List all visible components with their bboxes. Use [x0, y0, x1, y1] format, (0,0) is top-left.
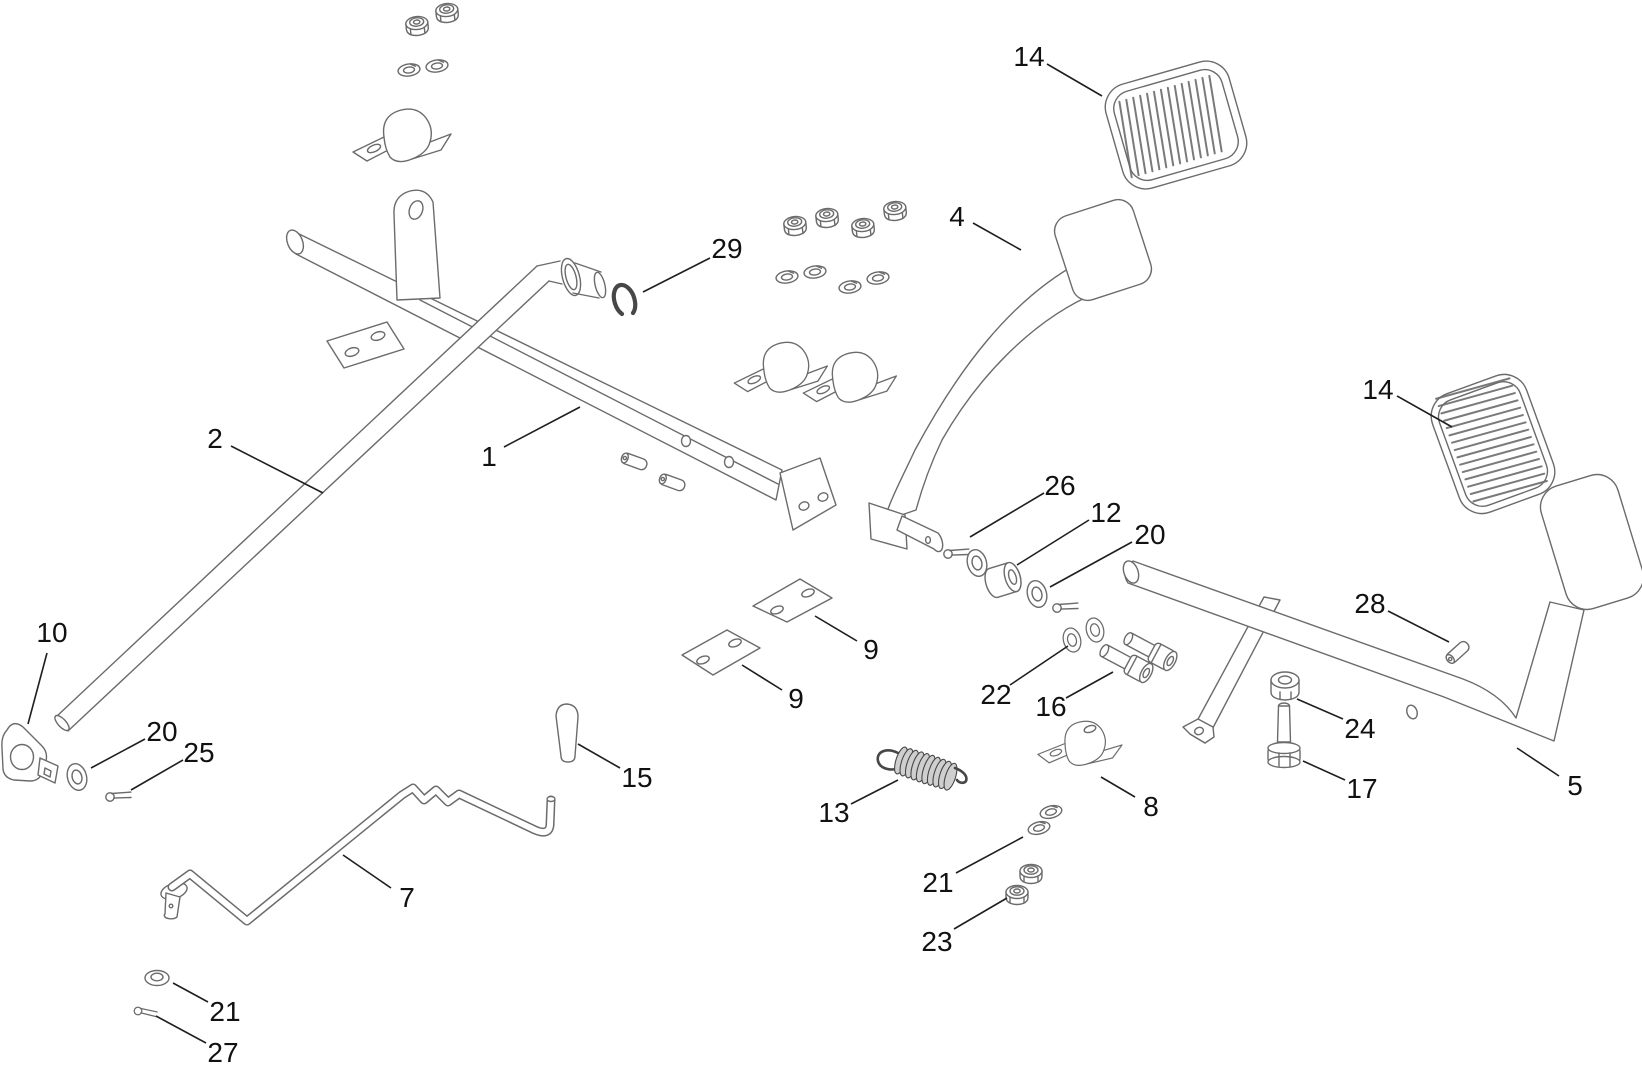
part-15-clevis-pin [556, 704, 578, 762]
callout-leader-13 [851, 780, 898, 804]
part-29-retaining-ring [614, 285, 635, 314]
callout-leader-22 [1010, 646, 1068, 685]
shim-plate-on-shaft [327, 322, 404, 368]
callout-leader-25 [131, 760, 183, 790]
part-25-cotter-pin [104, 785, 132, 807]
callout-leader-20 [91, 739, 145, 768]
callout-leader-4 [973, 223, 1021, 250]
callout-number-7: 7 [399, 882, 415, 913]
clamp-bracket [734, 342, 827, 392]
clamp-bracket [803, 352, 896, 402]
callout-number-23: 23 [921, 926, 952, 957]
callout-number-14: 14 [1013, 41, 1044, 72]
part-28-roll-pin [1444, 640, 1471, 666]
part-21-washer [145, 971, 169, 986]
roll-pin [658, 473, 686, 492]
part-20-washer [1024, 579, 1049, 610]
callout-leader-23 [954, 898, 1007, 929]
part-14-pedal-pad [1424, 368, 1561, 521]
callout-leader-9 [742, 665, 782, 690]
callout-number-12: 12 [1090, 497, 1121, 528]
callout-leader-20 [1050, 542, 1132, 587]
callout-number-2: 2 [207, 423, 223, 454]
part-23-lock-nut [1020, 865, 1042, 884]
callout-number-15: 15 [621, 762, 652, 793]
cotter-pin [1051, 596, 1079, 618]
part-7-brake-rod [159, 788, 555, 921]
diagram-page: 1429421142612202810992216202524151713857… [0, 0, 1642, 1067]
roll-pin [620, 452, 648, 471]
callout-leader-16 [1066, 672, 1113, 698]
callout-number-21: 21 [922, 867, 953, 898]
part-21-lock-washer [1039, 804, 1063, 821]
clamp-bracket [353, 109, 451, 161]
callout-number-17: 17 [1346, 773, 1377, 804]
part-2-arm-tube [53, 256, 608, 732]
callout-number-14: 14 [1362, 374, 1393, 405]
lock-washer [838, 280, 861, 295]
callout-leader-9 [815, 616, 857, 641]
callout-number-24: 24 [1344, 713, 1375, 744]
callout-leader-5 [1517, 748, 1559, 776]
lock-nut [783, 215, 807, 236]
callout-leader-21 [173, 983, 208, 1002]
callout-leader-2 [231, 446, 323, 493]
part-24-lock-nut [1271, 672, 1299, 700]
part-17-bolt [1268, 703, 1300, 768]
pedal-plate [1535, 469, 1642, 615]
part-23-lock-nut [1006, 886, 1028, 905]
callout-leader-14 [1047, 64, 1102, 96]
callout-leader-17 [1303, 761, 1345, 780]
part-22-washer [1084, 616, 1107, 644]
lock-washer [775, 270, 798, 285]
lock-nut [405, 15, 429, 36]
lock-washer [803, 265, 826, 280]
callout-number-5: 5 [1567, 770, 1583, 801]
callout-number-4: 4 [949, 201, 965, 232]
callout-number-9: 9 [788, 683, 804, 714]
callout-leader-26 [970, 493, 1044, 537]
callout-number-29: 29 [711, 233, 742, 264]
callout-number-9: 9 [863, 634, 879, 665]
lock-nut [851, 217, 875, 238]
callout-leader-10 [28, 653, 47, 724]
callout-leader-7 [343, 855, 391, 888]
part-8-pivot-bracket [1037, 718, 1123, 768]
lock-washer [866, 271, 889, 286]
callout-leader-29 [643, 258, 710, 292]
part-14-pedal-pad [1100, 55, 1253, 194]
lock-nut [435, 2, 459, 23]
callout-leader-28 [1388, 611, 1449, 642]
part-13-extension-spring [878, 746, 967, 792]
lock-washer [425, 59, 448, 74]
exploded-parts-diagram: 1429421142612202810992216202524151713857… [0, 0, 1642, 1067]
callout-number-13: 13 [818, 797, 849, 828]
callout-leader-12 [1017, 520, 1089, 565]
callout-number-22: 22 [980, 679, 1011, 710]
callout-leader-1 [504, 407, 580, 447]
callout-number-10: 10 [36, 617, 67, 648]
part-10-coupler-block [2, 724, 58, 783]
part-22-washer [1061, 626, 1084, 654]
callout-leader-21 [956, 837, 1023, 873]
lock-washer [397, 63, 420, 78]
part-12-spacer [982, 561, 1024, 600]
callout-leader-27 [156, 1016, 206, 1043]
lock-nut [883, 200, 907, 221]
callout-number-16: 16 [1035, 691, 1066, 722]
callout-leader-15 [578, 744, 620, 768]
callout-number-25: 25 [183, 737, 214, 768]
callout-number-27: 27 [207, 1037, 238, 1067]
part-21-lock-washer [1027, 820, 1051, 837]
callout-number-8: 8 [1143, 791, 1159, 822]
callout-leader-24 [1297, 699, 1343, 719]
lock-nut [815, 207, 839, 228]
callout-leader-8 [1101, 777, 1135, 797]
callout-number-21: 21 [209, 996, 240, 1027]
part-9-shim-plate [753, 579, 832, 622]
callout-number-28: 28 [1354, 588, 1385, 619]
callout-number-26: 26 [1044, 470, 1075, 501]
callout-number-20: 20 [1134, 519, 1165, 550]
callout-number-20: 20 [146, 716, 177, 747]
part-27-cotter-pin [134, 1005, 158, 1020]
callout-number-1: 1 [481, 441, 497, 472]
part-20-washer [64, 762, 89, 793]
